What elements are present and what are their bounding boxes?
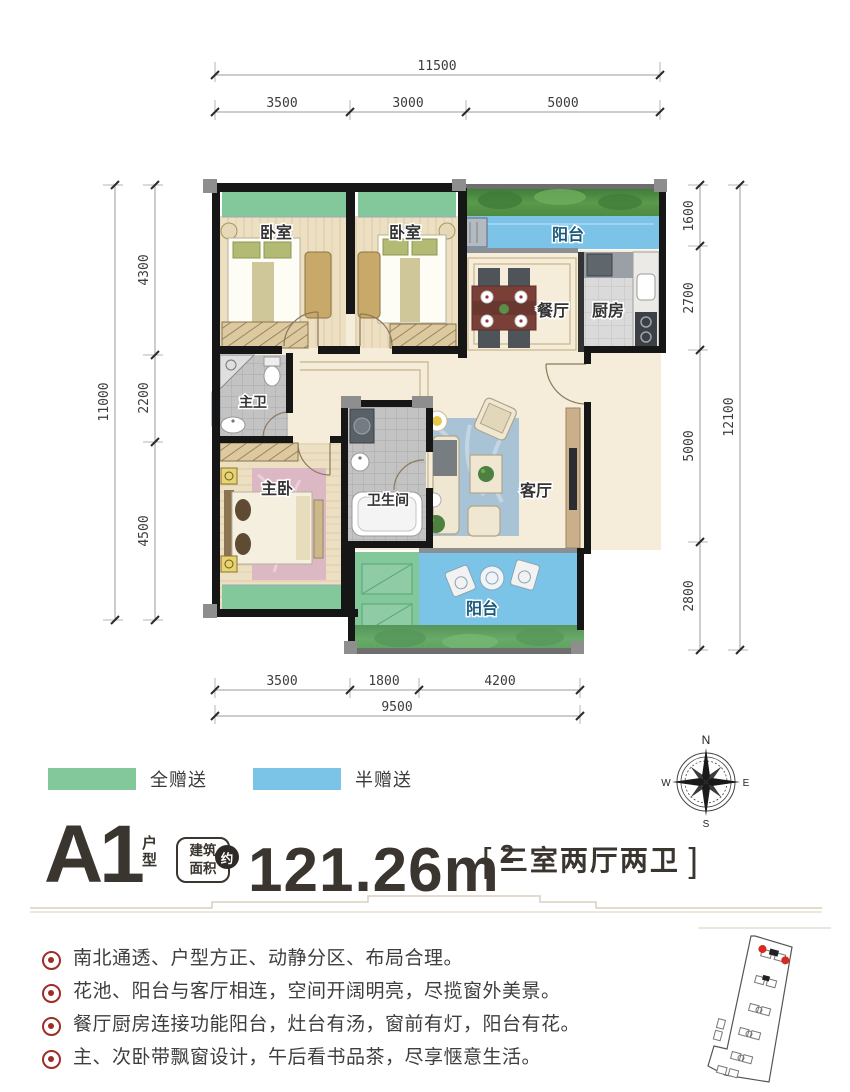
legend-label-full-gift: 全赠送 xyxy=(150,766,207,792)
bracket-right: ] xyxy=(688,842,697,880)
keyplan xyxy=(693,920,843,1090)
dim-top-seg1: 3500 xyxy=(266,96,297,111)
compass-e: E xyxy=(743,778,750,789)
room-label-dining: 餐厅 xyxy=(536,301,569,320)
legend-swatch-half-gift xyxy=(253,768,341,790)
legend-label-half-gift: 半赠送 xyxy=(355,766,412,792)
bullet-icon xyxy=(42,984,61,1003)
bathroom: 卫生间 xyxy=(348,407,426,541)
room-label-balcony-south: 阳台 xyxy=(466,599,498,618)
dim-left-seg1: 4300 xyxy=(137,254,152,285)
dim-left-total: 11000 xyxy=(97,382,112,421)
section-divider xyxy=(0,890,850,918)
bullet-icon xyxy=(42,951,61,970)
layout-text: 三室两厅两卫 xyxy=(500,845,680,876)
feature-item: 花池、阳台与客厅相连，空间开阔明亮，尽揽窗外美景。 xyxy=(42,981,662,1003)
feature-text: 主、次卧带飘窗设计，午后看书品茶，尽享惬意生活。 xyxy=(73,1047,541,1069)
dim-right-seg2: 2700 xyxy=(682,282,697,313)
dimensions-top: 11500 3500 3000 5000 xyxy=(211,59,664,120)
floorplan-figure: 11500 3500 3000 5000 11000 4300 2200 450… xyxy=(0,0,850,730)
room-label-living: 客厅 xyxy=(520,481,552,500)
dimensions-right: 1600 2700 5000 2800 12100 xyxy=(682,181,748,654)
bullet-icon xyxy=(42,1050,61,1069)
compass-w: W xyxy=(661,778,671,789)
floorplan-page: 11500 3500 3000 5000 11000 4300 2200 450… xyxy=(0,0,850,1092)
title-block: A1 户型 建筑 面积 约 121.26m2 [ 三室两厅两卫 ] xyxy=(0,813,850,898)
bedroom-2: 卧室 xyxy=(355,190,458,348)
feature-text: 餐厅厨房连接功能阳台，灶台有汤，窗前有灯，阳台有花。 xyxy=(73,1014,580,1036)
balcony-south: 阳台 xyxy=(352,548,584,653)
dimensions-left: 11000 4300 2200 4500 xyxy=(97,181,163,624)
compass-n: N xyxy=(702,733,711,747)
feature-text: 花池、阳台与客厅相连，空间开阔明亮，尽揽窗外美景。 xyxy=(73,981,561,1003)
feature-list: 南北通透、户型方正、动静分区、布局合理。 花池、阳台与客厅相连，空间开阔明亮，尽… xyxy=(42,948,662,1080)
dim-bottom-total: 9500 xyxy=(381,700,412,715)
dim-left-seg2: 2200 xyxy=(137,382,152,413)
approx-badge: 约 xyxy=(215,845,239,869)
room-label-bedroom-b: 卧室 xyxy=(389,223,421,242)
dim-bottom-seg1: 3500 xyxy=(266,674,297,689)
room-label-master-bedroom: 主卧 xyxy=(261,479,293,498)
dim-left-seg3: 4500 xyxy=(137,515,152,546)
legend-swatch-full-gift xyxy=(48,768,136,790)
dim-top-total: 11500 xyxy=(417,59,456,74)
dim-top-seg3: 5000 xyxy=(547,96,578,111)
bedroom-1: 卧室 xyxy=(220,190,346,348)
area-box-line2: 面积 xyxy=(190,860,217,878)
legend-item-half-gift: 半赠送 xyxy=(253,766,412,792)
room-label-balcony-north: 阳台 xyxy=(552,225,584,244)
legend-item-full-gift: 全赠送 xyxy=(48,766,207,792)
dim-bottom-seg3: 4200 xyxy=(484,674,515,689)
unit-type-label: 户型 xyxy=(138,835,159,891)
room-label-kitchen: 厨房 xyxy=(592,301,624,320)
feature-item: 主、次卧带飘窗设计，午后看书品茶，尽享惬意生活。 xyxy=(42,1047,662,1069)
legend: 全赠送 半赠送 xyxy=(48,766,412,792)
dimensions-bottom: 3500 1800 4200 9500 xyxy=(211,674,584,724)
dim-right-seg4: 2800 xyxy=(682,580,697,611)
bullet-icon xyxy=(42,1017,61,1036)
dim-right-seg1: 1600 xyxy=(682,200,697,231)
kitchen: 厨房 xyxy=(584,252,659,348)
area-box-line1: 建筑 xyxy=(190,842,217,860)
bracket-left: [ xyxy=(482,842,491,880)
feature-text: 南北通透、户型方正、动静分区、布局合理。 xyxy=(73,948,463,970)
dim-top-seg2: 3000 xyxy=(392,96,423,111)
unit-name: A1 xyxy=(44,817,141,893)
master-bath: 主卫 xyxy=(212,355,289,438)
master-bedroom: 主卧 xyxy=(220,443,344,611)
room-label-master-bath: 主卫 xyxy=(239,394,267,410)
layout-descriptor: [ 三室两厅两卫 ] xyxy=(482,839,698,881)
feature-item: 南北通透、户型方正、动静分区、布局合理。 xyxy=(42,948,662,970)
dim-right-seg3: 5000 xyxy=(682,430,697,461)
room-label-bathroom: 卫生间 xyxy=(367,492,409,508)
dim-bottom-seg2: 1800 xyxy=(368,674,399,689)
feature-item: 餐厅厨房连接功能阳台，灶台有汤，窗前有灯，阳台有花。 xyxy=(42,1014,662,1036)
room-label-bedroom-a: 卧室 xyxy=(260,223,292,242)
dim-right-total: 12100 xyxy=(722,397,737,436)
balcony-north: 阳台 xyxy=(462,188,660,253)
